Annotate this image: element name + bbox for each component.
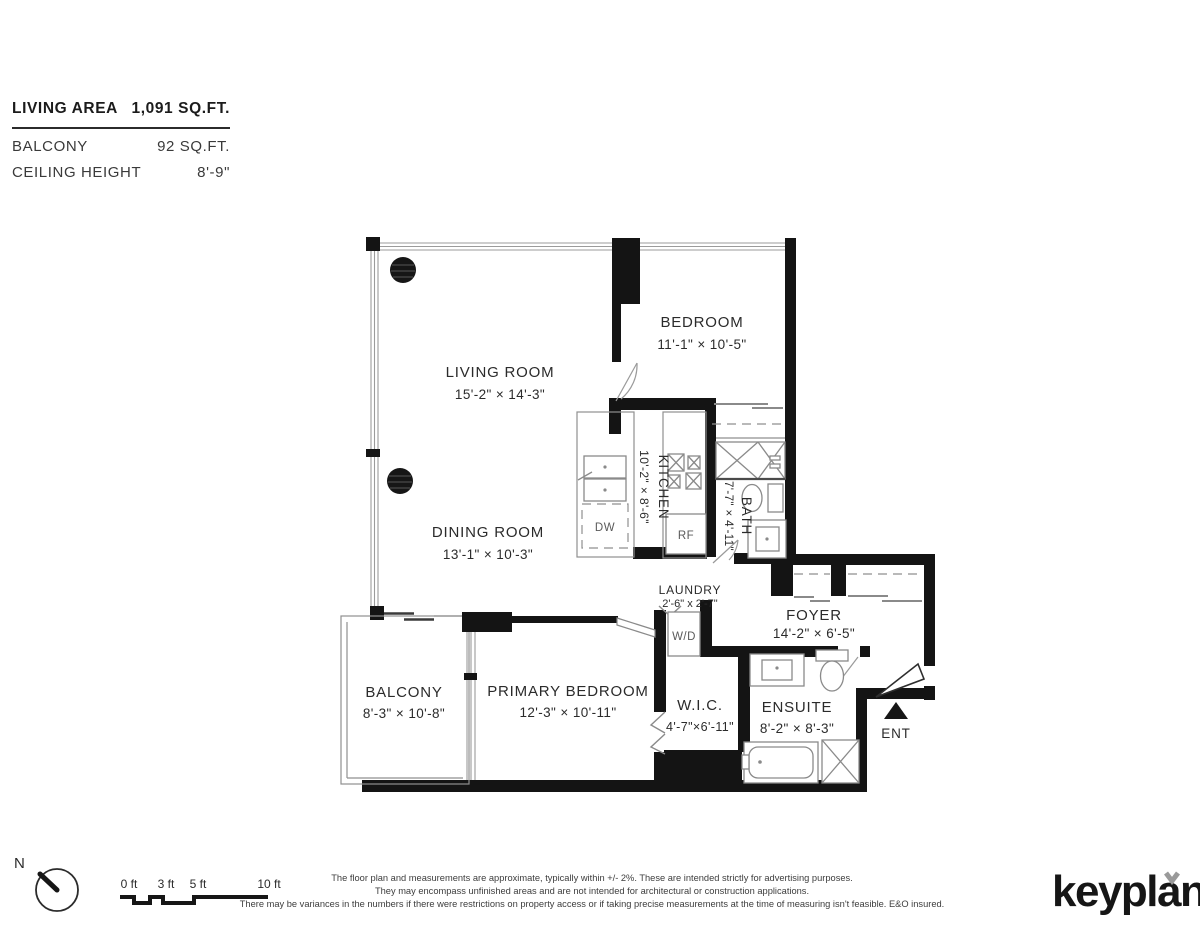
summary-row-balcony: BALCONY 92 SQ.FT. <box>12 138 230 155</box>
room-label-primary-bedroom: PRIMARY BEDROOM <box>487 683 648 700</box>
washer-dryer: W/D <box>668 612 700 656</box>
summary-row-living-area: LIVING AREA 1,091 SQ.FT. <box>12 100 230 129</box>
room-label-wic: W.I.C. <box>677 697 723 714</box>
disclaimer-line-2: They may encompass unfinished areas and … <box>375 886 809 896</box>
room-dims-bedroom: 11'-1" × 10'-5" <box>657 337 746 352</box>
wic-bifold-doors <box>651 712 665 754</box>
fridge: RF <box>666 514 706 554</box>
summary-row-ceiling: CEILING HEIGHT 8'-9" <box>12 164 230 181</box>
balcony-area-label: BALCONY <box>12 138 88 155</box>
room-dims-balcony: 8'-3" × 10'-8" <box>363 706 445 721</box>
room-label-dining: DINING ROOM <box>432 524 544 541</box>
room-dims-foyer: 14'-2" × 6'-5" <box>773 626 855 641</box>
primary-bedroom-door <box>617 618 655 637</box>
kitchen-sink <box>578 456 626 501</box>
dishwasher-label: DW <box>595 522 615 534</box>
stove <box>668 454 701 489</box>
bath-shower <box>716 442 785 479</box>
ensuite-shower <box>822 740 859 783</box>
compass: N <box>14 855 78 911</box>
area-summary: LIVING AREA 1,091 SQ.FT. BALCONY 92 SQ.F… <box>12 100 230 181</box>
keyplan-logo: keyplan <box>1052 867 1200 916</box>
bathtub <box>742 742 818 783</box>
entry-label: ENT <box>881 726 910 741</box>
floor-plan-page: LIVING AREA 1,091 SQ.FT. BALCONY 92 SQ.F… <box>0 0 1200 926</box>
room-dims-living: 15'-2" × 14'-3" <box>455 387 545 402</box>
disclaimer: The floor plan and measurements are appr… <box>240 873 945 909</box>
dishwasher: DW <box>582 504 628 548</box>
ensuite-vanity <box>750 654 804 686</box>
scale-tick-0ft: 0 ft <box>121 877 138 891</box>
washer-dryer-label: W/D <box>672 631 696 643</box>
room-label-kitchen: KITCHEN <box>656 455 671 520</box>
ensuite-toilet <box>816 650 848 691</box>
disclaimer-line-1: The floor plan and measurements are appr… <box>331 873 853 883</box>
ceiling-height-label: CEILING HEIGHT <box>12 164 141 181</box>
room-label-ensuite: ENSUITE <box>762 699 833 716</box>
scale-tick-5ft: 5 ft <box>190 877 207 891</box>
foyer-closet-right <box>848 574 922 601</box>
window-band-top <box>378 243 786 250</box>
room-dims-laundry: 2'-6" x 2'-7" <box>662 598 718 610</box>
room-dims-primary-bedroom: 12'-3" × 10'-11" <box>519 705 616 720</box>
entry-arrow: ENT <box>881 702 910 741</box>
room-label-living: LIVING ROOM <box>446 364 555 381</box>
room-dims-ensuite: 8'-2" × 8'-3" <box>760 721 834 736</box>
scale-tick-10ft: 10 ft <box>257 877 281 891</box>
fridge-label: RF <box>678 530 694 542</box>
room-label-bath: BATH <box>739 497 754 535</box>
foyer-closet-left <box>794 574 830 601</box>
scale-tick-3ft: 3 ft <box>158 877 175 891</box>
room-dims-bath: 7'-7" × 4'-11" <box>722 481 734 551</box>
living-area-label: LIVING AREA <box>12 100 118 118</box>
bedroom-closet <box>712 404 785 438</box>
living-area-value: 1,091 SQ.FT. <box>131 100 230 118</box>
compass-north-label: N <box>14 855 25 872</box>
balcony-area-value: 92 SQ.FT. <box>157 138 230 155</box>
ceiling-light-2 <box>387 468 413 494</box>
room-label-laundry: LAUNDRY <box>659 583 722 597</box>
ceiling-height-value: 8'-9" <box>197 164 230 181</box>
ceiling-light-1 <box>390 257 416 283</box>
bedroom-door <box>616 363 637 401</box>
room-dims-kitchen: 10'-2" × 8'-6" <box>637 450 651 524</box>
room-dims-wic: 4'-7"×6'-11" <box>666 720 734 734</box>
room-label-balcony: BALCONY <box>365 684 442 701</box>
disclaimer-line-3: There may be variances in the numbers if… <box>240 899 945 909</box>
room-label-bedroom: BEDROOM <box>660 314 743 331</box>
window-band-left <box>366 243 380 616</box>
room-dims-dining: 13'-1" × 10'-3" <box>443 547 533 562</box>
room-label-foyer: FOYER <box>786 607 842 624</box>
window-band-balcony-bedroom <box>464 618 477 780</box>
